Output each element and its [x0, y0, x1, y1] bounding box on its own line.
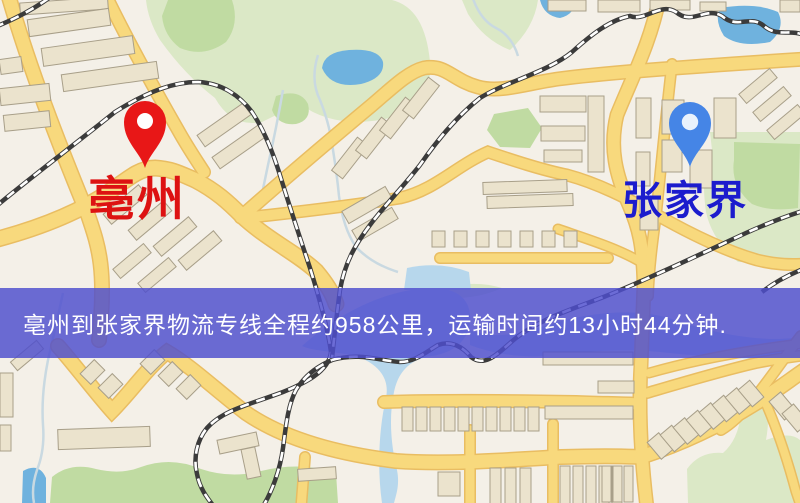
origin-city-label: 亳州: [88, 176, 186, 223]
map-screenshot: 亳州 张家界 亳州到张家界物流专线全程约958公里，运输时间约13小时44分钟.: [0, 0, 800, 503]
route-banner-text: 亳州到张家界物流专线全程约958公里，运输时间约13小时44分钟.: [23, 306, 727, 340]
destination-city-label: 张家界: [622, 181, 748, 221]
base-map: [0, 0, 800, 503]
route-banner: 亳州到张家界物流专线全程约958公里，运输时间约13小时44分钟.: [0, 288, 800, 358]
